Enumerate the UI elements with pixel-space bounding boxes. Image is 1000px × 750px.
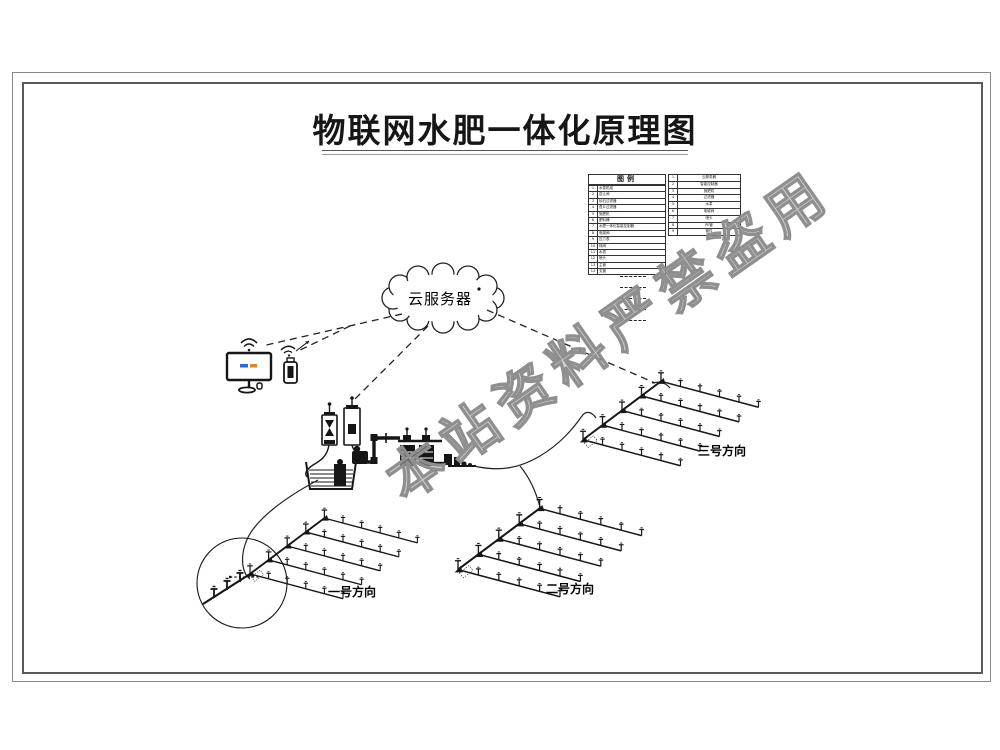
detail-circle bbox=[197, 538, 287, 628]
monitor-screen bbox=[227, 353, 271, 380]
monitor-stand bbox=[239, 387, 255, 392]
drawing-sheet: 物联网水肥一体化原理图 图例 1水泵机组 2逆止阀 3砂石过滤器 4叠片过滤器 … bbox=[0, 0, 1000, 750]
wifi-icon bbox=[241, 339, 257, 343]
injector-hose bbox=[306, 445, 329, 477]
mouse-icon bbox=[257, 383, 262, 389]
water-source bbox=[306, 459, 356, 489]
main-pump bbox=[352, 446, 368, 464]
screen-pixel-orange bbox=[250, 364, 257, 368]
field1-label: 一号方向 bbox=[328, 584, 376, 599]
wireless-link-phone bbox=[296, 326, 350, 352]
wireless-link-controller bbox=[352, 326, 428, 402]
wifi-icon bbox=[281, 346, 295, 350]
field2-label: 二号方向 bbox=[546, 581, 594, 596]
suction-pump bbox=[334, 464, 346, 486]
wireless-link-monitor bbox=[262, 314, 402, 346]
pipe-to-field2 bbox=[520, 466, 540, 507]
fertilizer-injector bbox=[322, 402, 337, 445]
cloud-dot bbox=[477, 287, 480, 290]
cloud-server: 云服务器 bbox=[382, 263, 504, 333]
field3-label: 三号方向 bbox=[698, 443, 746, 458]
monitor bbox=[227, 339, 271, 393]
screen-pixel-blue bbox=[240, 364, 248, 368]
cloud-server-label: 云服务器 bbox=[408, 291, 472, 308]
field1-detail bbox=[197, 538, 287, 628]
fertilizer-tank bbox=[344, 396, 360, 445]
